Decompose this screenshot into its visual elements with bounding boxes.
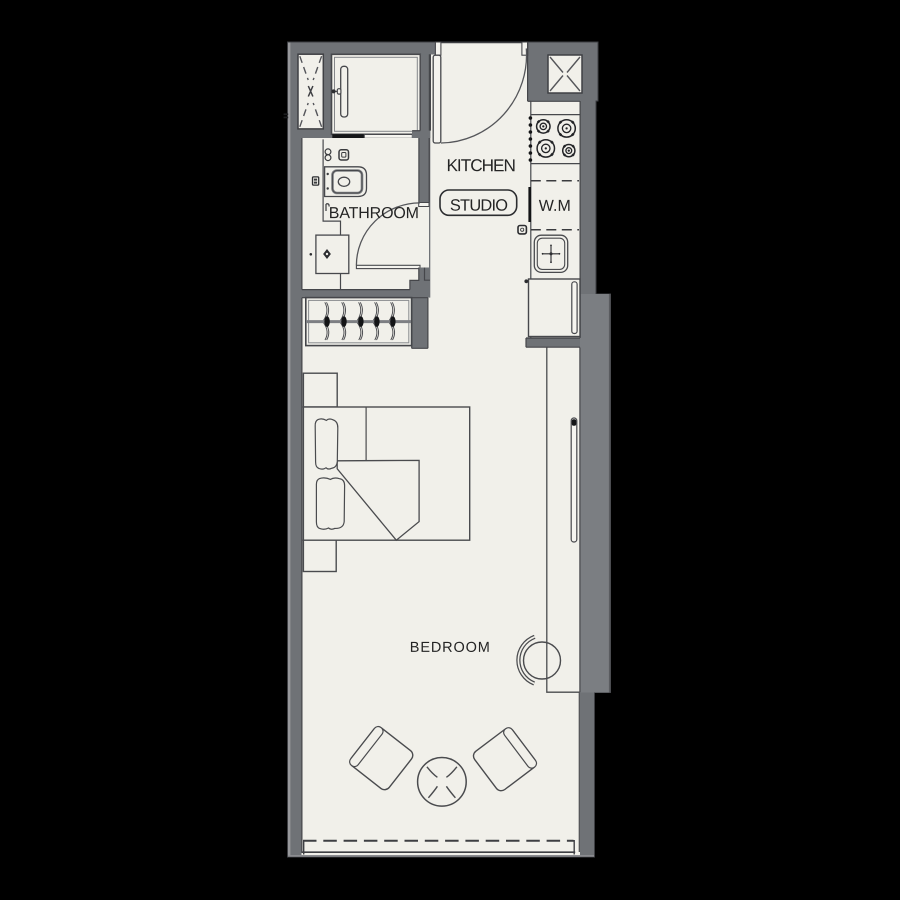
- svg-text:KITCHEN: KITCHEN: [446, 155, 515, 175]
- svg-text:BEDROOM: BEDROOM: [410, 640, 491, 656]
- svg-text:BATHROOM: BATHROOM: [329, 205, 419, 222]
- svg-text:W.M: W.M: [539, 198, 571, 215]
- svg-text:STUDIO: STUDIO: [450, 197, 507, 215]
